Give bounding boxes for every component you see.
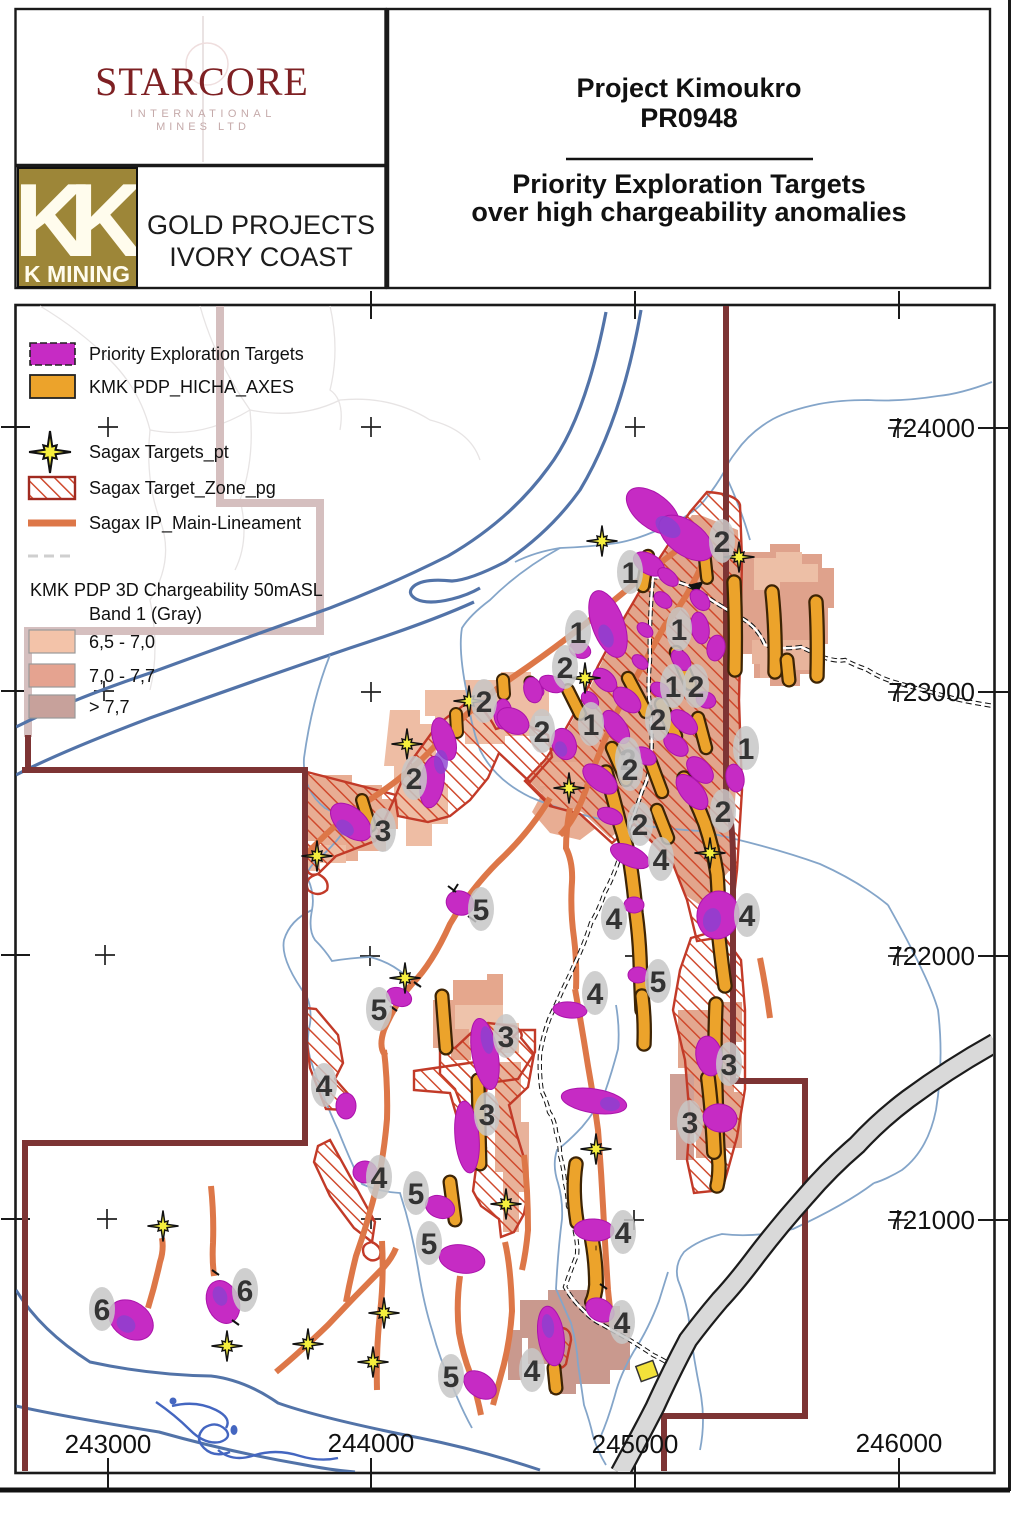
svg-text:6: 6 [94, 1294, 111, 1327]
svg-text:IVORY COAST: IVORY COAST [169, 242, 353, 272]
svg-text:5: 5 [421, 1228, 438, 1261]
svg-text:5: 5 [443, 1361, 460, 1394]
svg-text:1: 1 [622, 557, 639, 590]
svg-text:INTERNATIONAL: INTERNATIONAL [130, 108, 276, 120]
svg-text:5: 5 [650, 966, 667, 999]
svg-text:Sagax IP_Main-Lineament: Sagax IP_Main-Lineament [89, 513, 301, 534]
svg-text:4: 4 [739, 900, 756, 933]
svg-text:2: 2 [688, 671, 705, 704]
svg-text:1: 1 [570, 617, 587, 650]
svg-text:245000: 245000 [592, 1429, 679, 1459]
svg-text:4: 4 [606, 903, 623, 936]
svg-text:4: 4 [653, 844, 670, 877]
svg-text:1: 1 [665, 671, 682, 704]
svg-text:STARCORE: STARCORE [95, 59, 309, 104]
svg-text:PR0948: PR0948 [640, 103, 738, 133]
svg-text:4: 4 [615, 1217, 632, 1250]
svg-text:2: 2 [557, 652, 574, 685]
svg-text:2: 2 [622, 754, 639, 787]
svg-text:2: 2 [476, 686, 493, 719]
svg-text:4: 4 [316, 1070, 333, 1103]
svg-text:4: 4 [524, 1355, 541, 1388]
svg-text:1: 1 [738, 733, 755, 766]
svg-text:Sagax Target_Zone_pg: Sagax Target_Zone_pg [89, 478, 276, 499]
svg-text:2: 2 [632, 809, 649, 842]
svg-text:> 7,7: > 7,7 [89, 697, 130, 717]
svg-text:3: 3 [721, 1049, 738, 1082]
svg-text:5: 5 [473, 894, 490, 927]
svg-text:K MINING: K MINING [24, 261, 130, 287]
svg-text:Band 1 (Gray): Band 1 (Gray) [89, 604, 202, 624]
svg-text:5: 5 [408, 1178, 425, 1211]
svg-text:2: 2 [714, 526, 731, 559]
svg-text:2: 2 [650, 704, 667, 737]
svg-text:243000: 243000 [65, 1429, 152, 1459]
svg-text:3: 3 [498, 1021, 515, 1054]
svg-text:Priority Exploration Targets: Priority Exploration Targets [512, 169, 866, 199]
svg-text:722000: 722000 [888, 941, 975, 971]
svg-text:Priority Exploration Targets: Priority Exploration Targets [89, 344, 304, 364]
svg-text:3: 3 [479, 1099, 496, 1132]
svg-text:3: 3 [682, 1107, 699, 1140]
svg-text:724000: 724000 [888, 413, 975, 443]
svg-text:MINES LTD: MINES LTD [156, 121, 250, 133]
svg-text:5: 5 [371, 994, 388, 1027]
svg-text:2: 2 [534, 716, 551, 749]
svg-text:4: 4 [587, 978, 604, 1011]
svg-text:1: 1 [583, 709, 600, 742]
svg-text:KMK PDP_HICHA_AXES: KMK PDP_HICHA_AXES [89, 377, 294, 398]
svg-text:721000: 721000 [888, 1205, 975, 1235]
svg-text:4: 4 [371, 1162, 388, 1195]
svg-text:Sagax Targets_pt: Sagax Targets_pt [89, 442, 229, 463]
svg-text:Project Kimoukro: Project Kimoukro [576, 73, 801, 103]
svg-text:6: 6 [237, 1275, 254, 1308]
svg-text:1: 1 [671, 614, 688, 647]
svg-text:7,0 - 7,7: 7,0 - 7,7 [89, 666, 155, 686]
svg-text:over high chargeability anomal: over high chargeability anomalies [471, 197, 906, 227]
svg-text:244000: 244000 [328, 1428, 415, 1458]
svg-text:723000: 723000 [888, 677, 975, 707]
svg-text:2: 2 [406, 763, 423, 796]
svg-text:2: 2 [715, 796, 732, 829]
svg-text:GOLD PROJECTS: GOLD PROJECTS [147, 210, 375, 240]
svg-text:KMK PDP 3D Chargeability 5: KMK PDP 3D Chargeability 50mASL [30, 580, 323, 600]
svg-text:246000: 246000 [856, 1428, 943, 1458]
svg-text:3: 3 [375, 815, 392, 848]
svg-text:6,5 - 7,0: 6,5 - 7,0 [89, 632, 155, 652]
svg-text:4: 4 [614, 1307, 631, 1340]
